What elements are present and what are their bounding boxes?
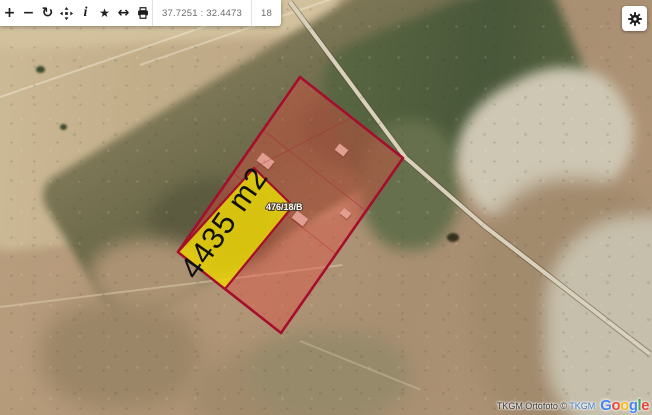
- printer-icon: [136, 6, 150, 20]
- imagery-attribution-link[interactable]: TKGM: [569, 401, 595, 411]
- favorites-button[interactable]: ★: [95, 0, 114, 26]
- coordinates-display: 37.7251 : 32.4473: [152, 0, 251, 26]
- refresh-button[interactable]: ↻: [38, 0, 57, 26]
- pan-icon: [59, 6, 74, 21]
- parcel-overlay: 476/18/B 4435 m2: [0, 0, 652, 415]
- google-letter: e: [641, 397, 649, 414]
- google-letter: G: [600, 397, 611, 414]
- print-button[interactable]: [133, 0, 152, 26]
- settings-button[interactable]: [622, 6, 647, 31]
- gear-icon: [627, 11, 643, 27]
- info-icon: i: [84, 6, 88, 20]
- map-attribution: TKGM Ortofoto © TKGM Google: [497, 398, 649, 413]
- plus-icon: +: [4, 6, 16, 20]
- imagery-attribution: TKGM Ortofoto © TKGM: [497, 401, 595, 411]
- zoom-out-button[interactable]: −: [19, 0, 38, 26]
- pan-button[interactable]: [57, 0, 76, 26]
- measure-button[interactable]: ↔: [114, 0, 133, 26]
- imagery-attribution-text: TKGM Ortofoto ©: [497, 401, 569, 411]
- double-arrow-icon: ↔: [118, 6, 130, 20]
- zoom-level-display: 18: [251, 0, 281, 26]
- google-logo[interactable]: Google: [600, 398, 649, 413]
- refresh-icon: ↻: [42, 6, 54, 20]
- minus-icon: −: [23, 6, 35, 20]
- google-letter: o: [620, 397, 629, 414]
- info-button[interactable]: i: [76, 0, 95, 26]
- map-toolbar: + − ↻ i ★ ↔: [0, 0, 281, 26]
- zoom-in-button[interactable]: +: [0, 0, 19, 26]
- google-letter: o: [611, 397, 620, 414]
- parcel-number-label: 476/18/B: [266, 202, 303, 212]
- app-window: 476/18/B 4435 m2 + − ↻ i: [0, 0, 652, 415]
- star-icon: ★: [99, 7, 110, 19]
